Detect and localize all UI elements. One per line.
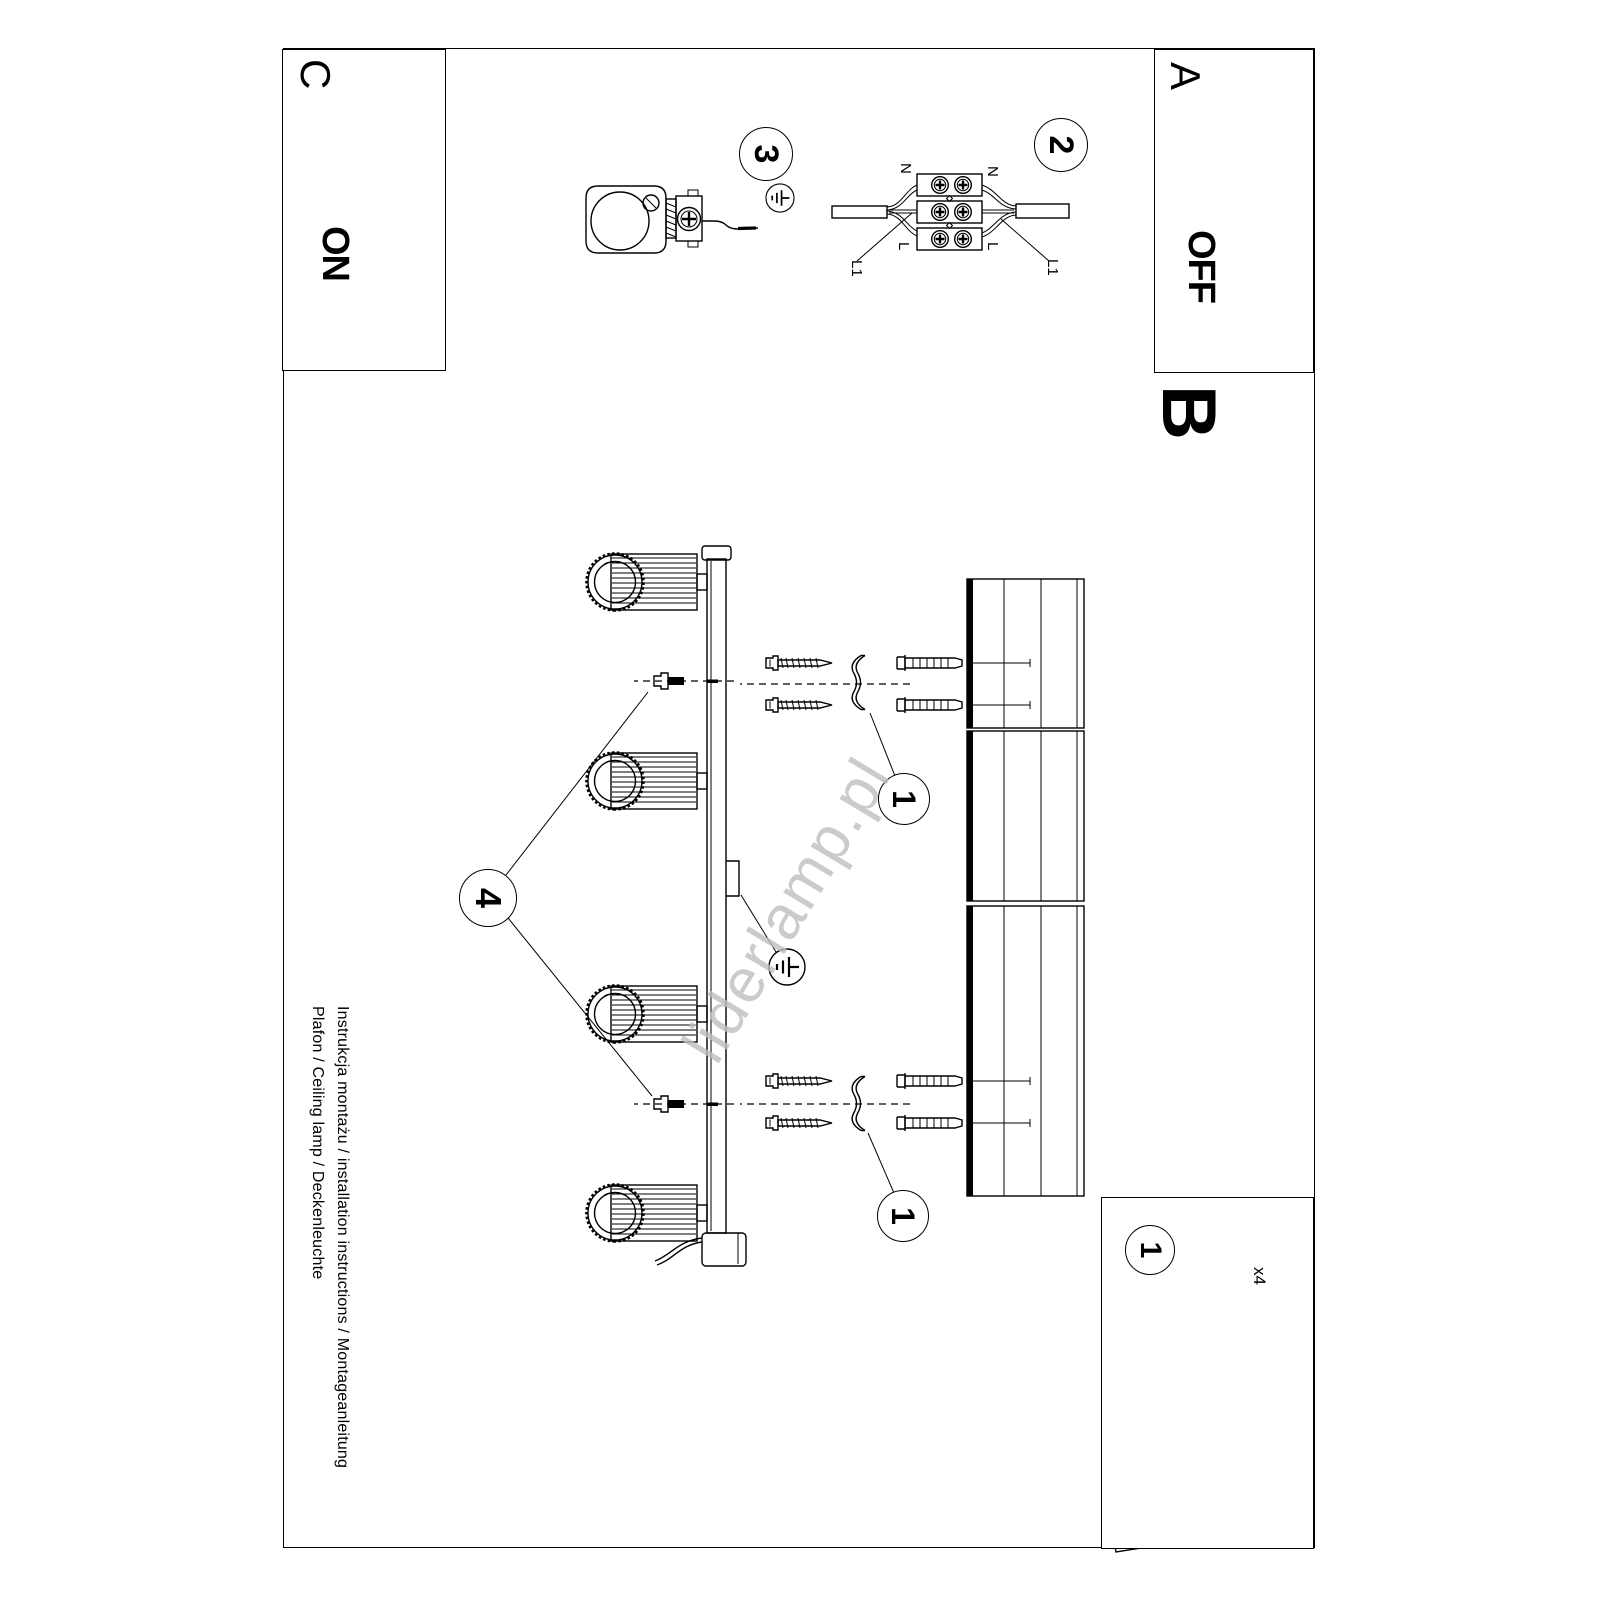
mounting-hardware-right — [740, 1073, 962, 1131]
leader-step1-right — [868, 1133, 894, 1193]
wire-label-n-top: N — [985, 166, 1000, 177]
instruction-sheet-scan: A B C OFF ON 2 3 4 1 1 1 N N L L L1 L1 x… — [0, 0, 1600, 1600]
step-3-badge: 3 — [739, 127, 793, 181]
mounting-hardware-left — [740, 655, 962, 713]
thumb-screw-icon — [634, 673, 734, 689]
section-a-box — [1154, 49, 1314, 373]
step-2-badge: 2 — [1034, 118, 1088, 172]
section-label-c: C — [294, 59, 336, 89]
step-1-number: 1 — [1135, 1242, 1165, 1259]
ceiling-section-figure — [967, 579, 1084, 1196]
section-label-a: A — [1164, 62, 1206, 90]
spotlight-figure — [587, 753, 708, 810]
section-c-box — [282, 49, 446, 371]
spotlight-figure — [587, 1185, 708, 1242]
earth-symbol-icon — [766, 184, 794, 212]
parts-step-1-badge: 1 — [1125, 1225, 1175, 1275]
footer-product-line: Plafon / Ceiling lamp / Deckenleuchte — [309, 1006, 325, 1279]
section-label-b: B — [1150, 385, 1226, 440]
step-1-number: 1 — [887, 1207, 919, 1225]
wiring-diagram-figure — [832, 174, 1069, 261]
footer-title-line: Instrukcja montażu / installation instru… — [334, 1006, 350, 1468]
on-label: ON — [316, 226, 354, 281]
step-1-badge-right: 1 — [877, 1190, 929, 1242]
thumb-screw-icon — [634, 1096, 734, 1112]
step-4-badge: 4 — [459, 869, 517, 927]
wire-label-n-bottom: N — [898, 163, 913, 174]
step-2-number: 2 — [1044, 136, 1078, 155]
wire-label-l-bottom: L — [896, 242, 911, 250]
step-4-number: 4 — [470, 888, 506, 908]
instruction-page: A B C OFF ON 2 3 4 1 1 1 N N L L L1 L1 x… — [283, 48, 1315, 1548]
off-label: OFF — [1182, 230, 1220, 303]
step-3-number: 3 — [749, 145, 783, 164]
spotlight-figure — [587, 554, 708, 611]
screws-quantity-label: x4 — [1251, 1267, 1268, 1285]
wire-label-l1-bottom: L1 — [849, 260, 864, 277]
wire-label-l-top: L — [985, 242, 1000, 250]
wire-label-l1-top: L1 — [1045, 259, 1060, 276]
ground-terminal-figure — [586, 184, 794, 253]
